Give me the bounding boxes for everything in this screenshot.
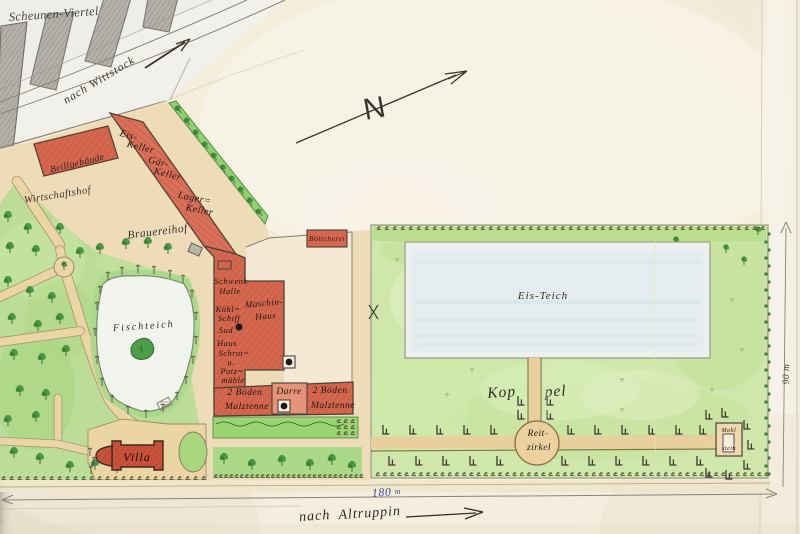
svg-text:zirkel: zirkel (526, 443, 551, 453)
svg-text:Haus: Haus (216, 338, 237, 348)
svg-text:90 m: 90 m (782, 364, 792, 385)
svg-text:2 Böden: 2 Böden (228, 388, 263, 398)
svg-text:Schrot=: Schrot= (218, 348, 249, 358)
svg-text:Darre: Darre (275, 387, 301, 397)
svg-text:Villa: Villa (123, 450, 150, 464)
svg-text:Eis-Teich: Eis-Teich (517, 290, 568, 302)
svg-text:mühle: mühle (221, 375, 244, 385)
svg-text:Kop: Kop (486, 383, 517, 402)
svg-text:Schwenk: Schwenk (214, 276, 247, 286)
svg-text:Schiff: Schiff (218, 313, 241, 323)
svg-text:2 Böden: 2 Böden (313, 386, 348, 396)
svg-text:Böttcherei: Böttcherei (309, 234, 345, 243)
svg-text:180: 180 (372, 486, 392, 499)
svg-text:nach: nach (299, 508, 331, 525)
svg-text:Sud: Sud (219, 325, 234, 335)
svg-text:stein: stein (722, 446, 736, 452)
svg-text:m: m (394, 487, 401, 496)
svg-text:Malztenne: Malztenne (310, 401, 355, 411)
svg-text:Halle: Halle (218, 286, 240, 296)
svg-text:Haus: Haus (254, 310, 277, 322)
svg-text:Mahl: Mahl (721, 428, 737, 434)
svg-text:Malztenne: Malztenne (224, 402, 269, 412)
